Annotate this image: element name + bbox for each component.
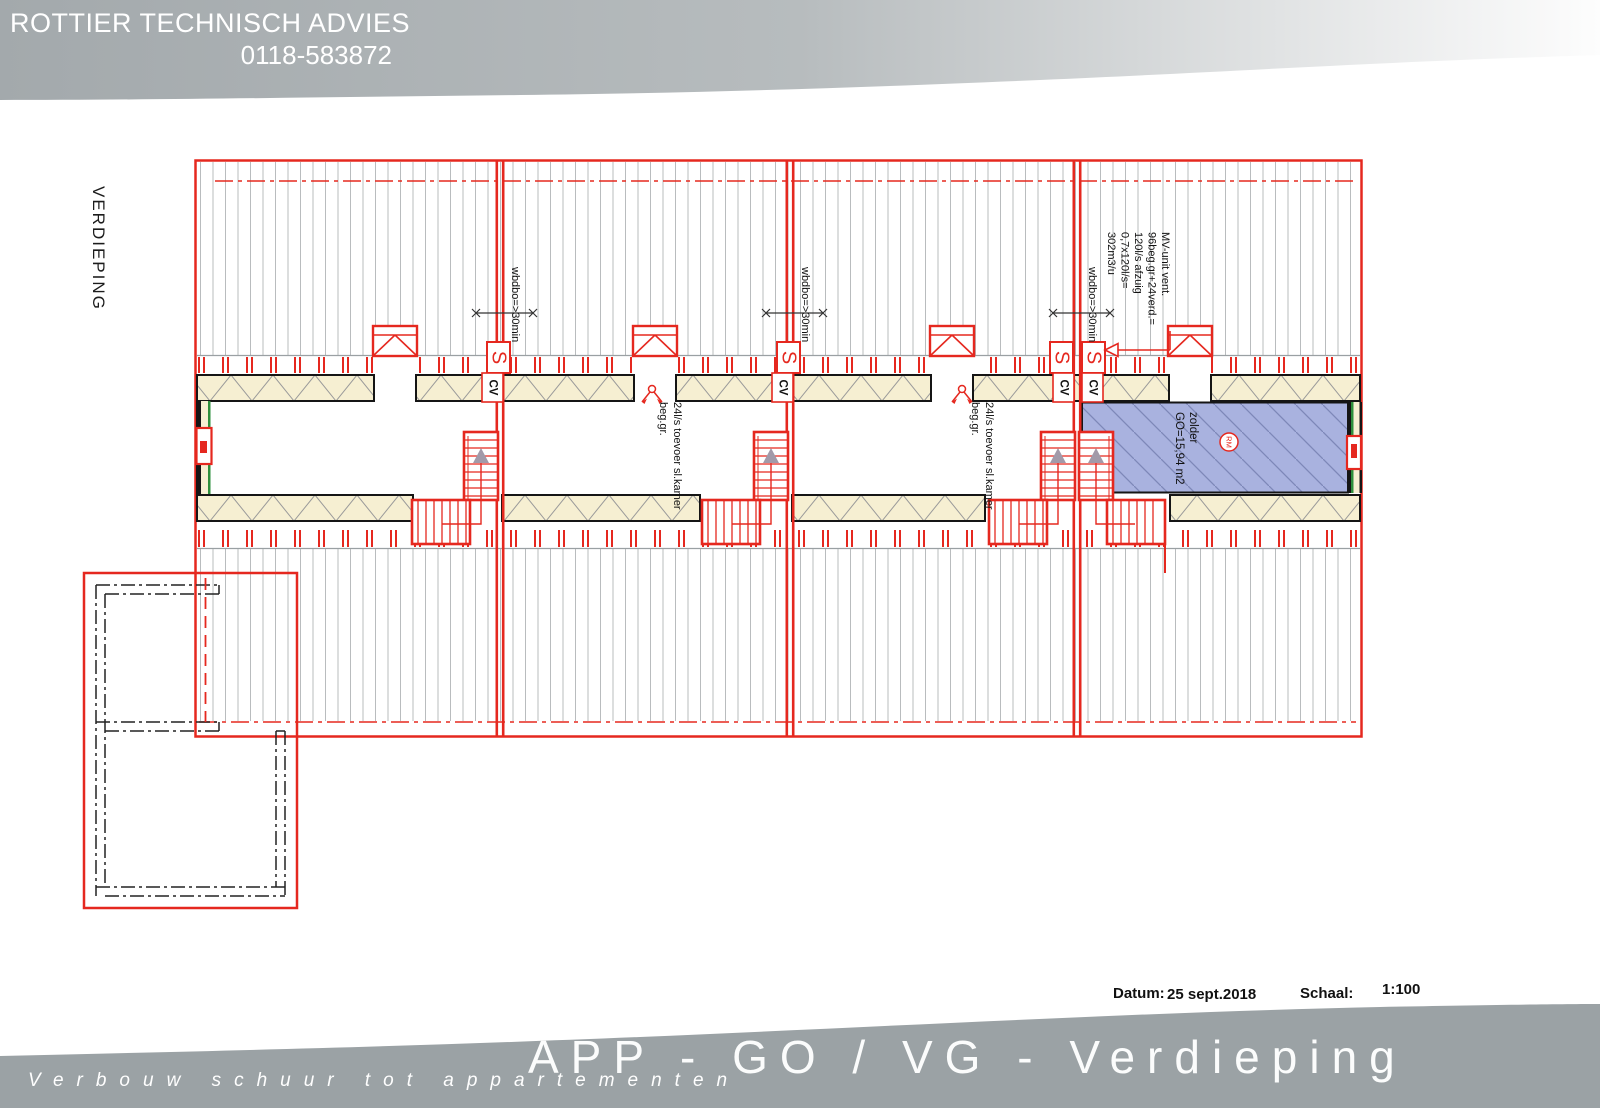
- cv-box-3a: CV: [1053, 373, 1074, 402]
- shaft-symbol: S: [488, 351, 510, 364]
- chimney-4: [1168, 326, 1212, 356]
- annotation-mv-line-3: 120l/s afzuig: [1132, 232, 1144, 294]
- schaal-value: 1:100: [1382, 981, 1420, 998]
- shaft-box-3a: S: [1050, 342, 1073, 373]
- cv-label: CV: [777, 380, 789, 396]
- chimney-1: [373, 326, 417, 356]
- annotation-toevoer-1b: beg.gr.: [657, 402, 669, 436]
- footer-subtitle: Verbouw schuur tot appartementen: [28, 1070, 740, 1092]
- annotation-wbdbo-2: wbdbo=>30min: [799, 266, 811, 342]
- annotation-toevoer-1a: 24l/s toevoer sl.kamer: [671, 402, 683, 510]
- shaft-box-3b: S: [1082, 342, 1105, 373]
- end-wall-right: [1347, 402, 1362, 493]
- annotation-wbdbo-1: wbdbo=>30min: [509, 266, 521, 342]
- annotation-mv-line-1: MV-unit vent.: [1159, 232, 1171, 296]
- annotation-zolder-area: GO=15,94 m2: [1173, 412, 1185, 485]
- page: { "header": { "company": "ROTTIER TECHNI…: [0, 0, 1600, 1108]
- cv-label: CV: [1058, 380, 1070, 396]
- shaft-symbol: S: [778, 351, 800, 364]
- annotation-toevoer-2a: 24l/s toevoer sl.kamer: [983, 402, 995, 510]
- smoke-detector: RM: [1220, 433, 1238, 451]
- cv-box-2: CV: [772, 373, 793, 402]
- shaft-symbol: S: [1083, 351, 1105, 364]
- annotation-wbdbo-3: wbdbo=>30min: [1086, 266, 1098, 342]
- floor-plan: S S S S CV CV CV CV: [0, 0, 1600, 1108]
- annotation-mv-line-5: 302m3/u: [1105, 232, 1117, 275]
- cv-box-3b: CV: [1082, 373, 1103, 402]
- smoke-detector-label: RM: [1225, 436, 1234, 448]
- end-wall-left: [196, 401, 212, 494]
- annotation-toevoer-2b: beg.gr.: [969, 402, 981, 436]
- shaft-symbol: S: [1051, 351, 1073, 364]
- zolder-room: [1082, 403, 1348, 493]
- shaft-box-1: S: [487, 342, 510, 373]
- chimney-2: [633, 326, 677, 356]
- annotation-zolder-name: zolder: [1187, 412, 1199, 443]
- annotation-mv-line-2: 96beg.gr+24verd.=: [1146, 232, 1158, 325]
- shaft-box-2: S: [777, 342, 800, 373]
- chimney-3: [930, 326, 974, 356]
- cv-label: CV: [1087, 380, 1099, 396]
- roof-plane-lower: [197, 549, 1360, 721]
- cv-label: CV: [487, 380, 499, 396]
- stud-row-lower: [197, 530, 1360, 547]
- annotation-mv-line-4: 0,7x120l/s=: [1119, 232, 1131, 289]
- cv-box-1: CV: [482, 373, 503, 402]
